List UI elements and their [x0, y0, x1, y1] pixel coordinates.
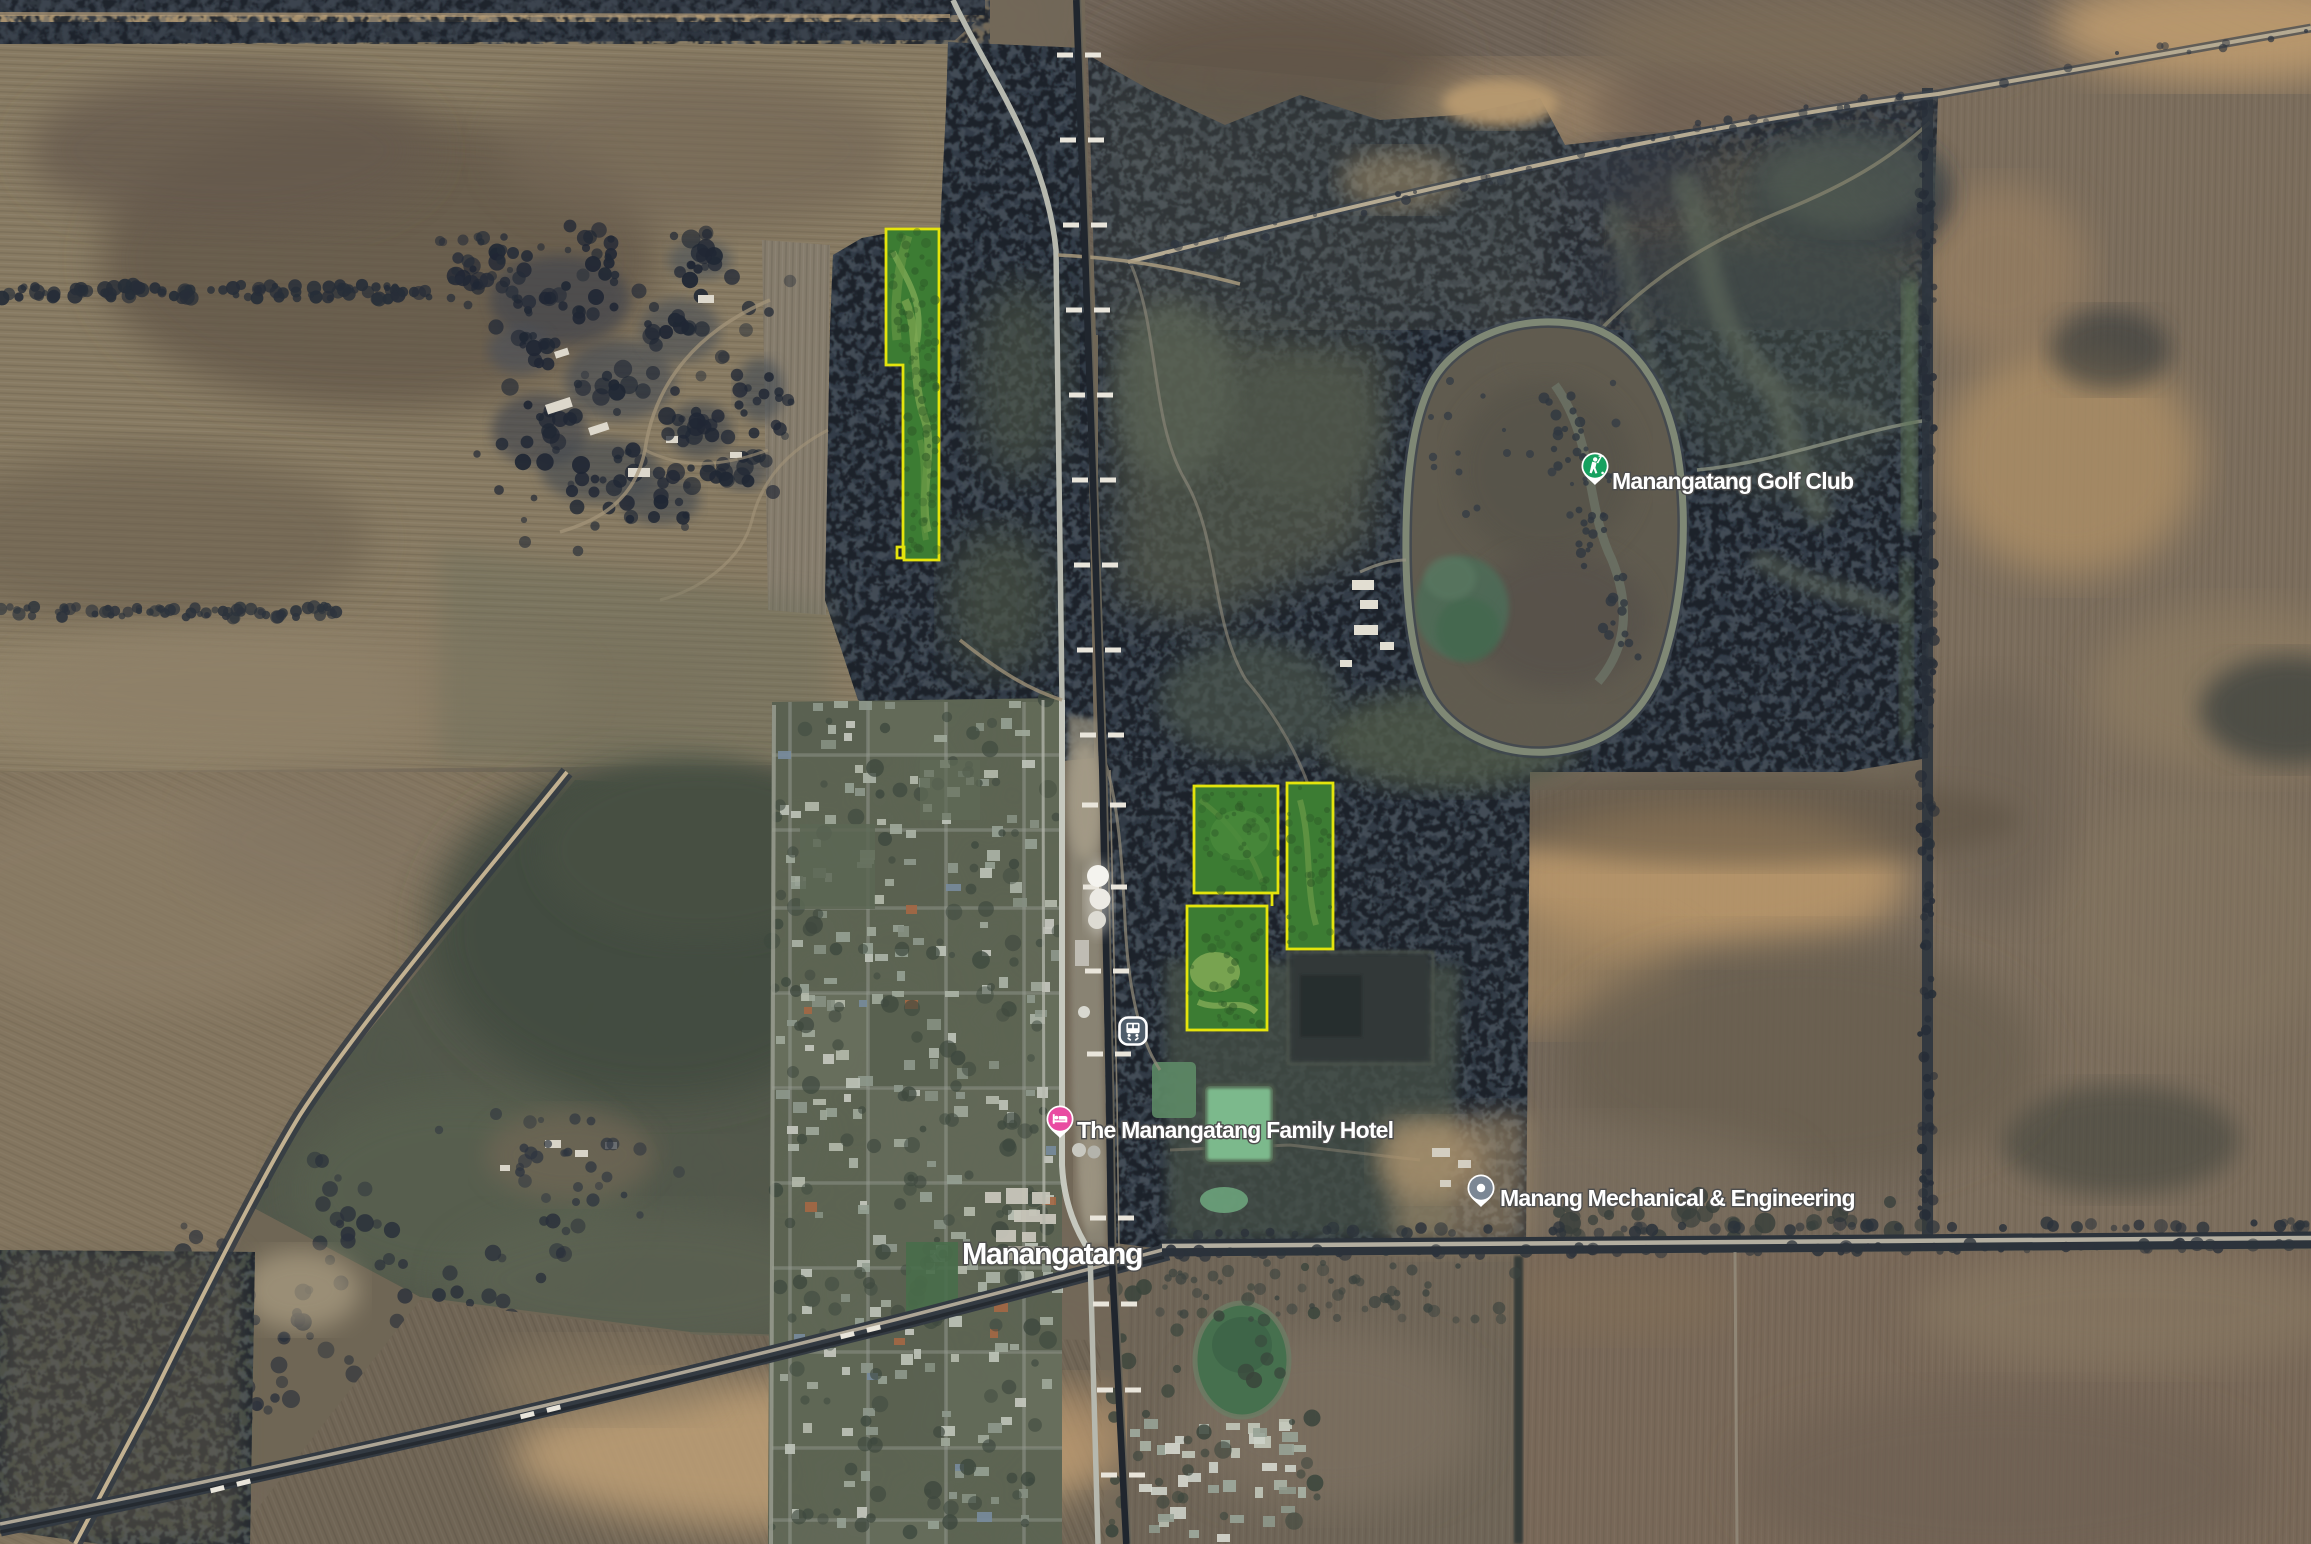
svg-text:Manangatang: Manangatang [962, 1237, 1142, 1271]
svg-text:Manangatang Golf Club: Manangatang Golf Club [1612, 468, 1854, 494]
svg-text:Manang Mechanical & Engineerin: Manang Mechanical & Engineering [1500, 1185, 1855, 1211]
svg-text:The Manangatang Family Hotel: The Manangatang Family Hotel [1077, 1117, 1393, 1143]
